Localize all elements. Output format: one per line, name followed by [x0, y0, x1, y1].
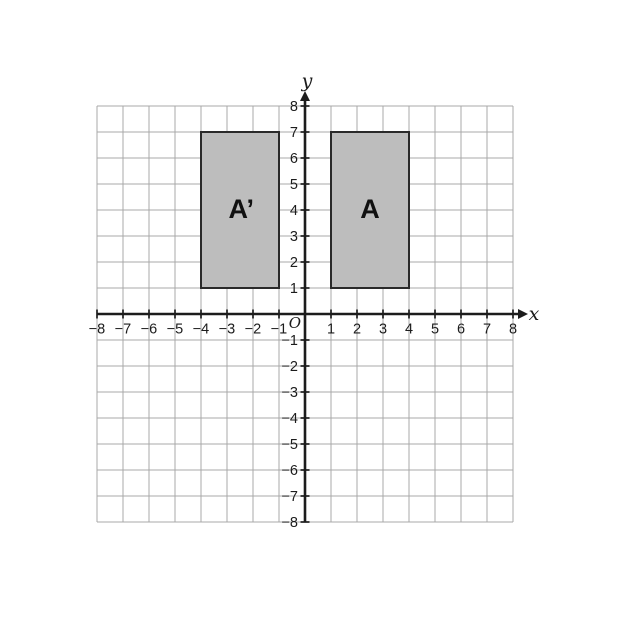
x-tick-label: −5 [167, 322, 184, 338]
rect-A-prime-label: A’ [229, 194, 255, 224]
y-tick-label: 3 [290, 229, 298, 245]
y-tick-label: 7 [290, 125, 298, 141]
y-tick-label: −7 [281, 489, 298, 505]
y-tick-label: −1 [281, 333, 298, 349]
x-tick-label: 6 [457, 322, 465, 338]
x-tick-label: 2 [353, 322, 361, 338]
x-tick-label: 3 [379, 322, 387, 338]
y-tick-label: −3 [281, 385, 298, 401]
x-tick-label: −8 [89, 322, 106, 338]
y-tick-label: −5 [281, 437, 298, 453]
y-tick-label: −4 [281, 411, 298, 427]
x-tick-label: −3 [219, 322, 236, 338]
x-tick-label: −7 [115, 322, 132, 338]
y-tick-label: 5 [290, 177, 298, 193]
y-tick-label: 2 [290, 255, 298, 271]
y-tick-label: 1 [290, 281, 298, 297]
y-tick-label: −6 [281, 463, 298, 479]
x-tick-label: −6 [141, 322, 158, 338]
origin-letter: O [289, 314, 301, 332]
y-axis-letter: y [301, 70, 313, 92]
x-axis-letter: x [529, 303, 540, 325]
figure-canvas: AA’−8−7−6−5−4−3−2−112345678−8−7−6−5−4−3−… [0, 0, 624, 624]
x-tick-label: 5 [431, 322, 439, 338]
x-tick-label: 1 [327, 322, 335, 338]
y-tick-label: 8 [290, 99, 298, 115]
coordinate-plane: AA’−8−7−6−5−4−3−2−112345678−8−7−6−5−4−3−… [0, 0, 624, 624]
y-tick-label: −8 [281, 515, 298, 531]
x-tick-label: 8 [509, 322, 517, 338]
x-tick-label: −2 [245, 322, 262, 338]
x-tick-label: 7 [483, 322, 491, 338]
rect-A-label: A [360, 194, 380, 224]
x-tick-label: −4 [193, 322, 210, 338]
rect-A-prime: A’ [201, 132, 279, 288]
rect-A: A [331, 132, 409, 288]
y-tick-label: 4 [290, 203, 298, 219]
x-tick-label: 4 [405, 322, 413, 338]
y-tick-label: −2 [281, 359, 298, 375]
y-tick-label: 6 [290, 151, 298, 167]
